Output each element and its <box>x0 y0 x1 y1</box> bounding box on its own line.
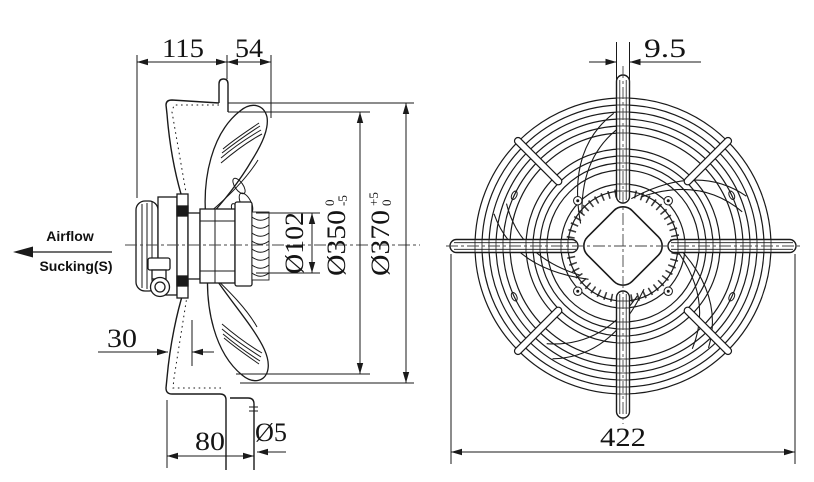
fan-tolerance-lower: -5 <box>335 195 350 206</box>
airflow-arrow-icon <box>13 247 33 258</box>
dim-54: 54 <box>235 34 263 63</box>
front-lip-tab <box>219 79 228 112</box>
fan-technical-drawing: Airflow Sucking(S) <box>0 0 814 482</box>
airflow-annotation: Airflow Sucking(S) <box>13 228 113 274</box>
hub-barrel <box>200 209 235 283</box>
fan-technical-drawing-page: Airflow Sucking(S) <box>0 0 814 482</box>
dim-hole-diameter: Ø5 <box>255 418 287 447</box>
dim-opening-diameter: Ø370 +5 0 <box>366 192 395 276</box>
rotor-rib-frame <box>252 212 269 280</box>
svg-text:Ø370: Ø370 <box>366 210 395 276</box>
sucking-label: Sucking(S) <box>39 258 112 274</box>
svg-text:Ø102: Ø102 <box>280 212 309 274</box>
motor-spacer <box>188 213 200 279</box>
dim-fan-diameter: Ø350 0 -5 <box>322 195 351 276</box>
dim-115: 115 <box>162 34 204 63</box>
svg-text:Ø350: Ø350 <box>322 210 351 276</box>
cable-gland-body <box>148 258 170 270</box>
dim-hub-diameter: Ø102 <box>280 212 309 274</box>
rotor-cup <box>235 202 252 286</box>
airflow-label: Airflow <box>46 228 94 244</box>
dim-strut-width: 9.5 <box>644 34 686 63</box>
motor <box>136 194 269 298</box>
flange-bolt-bottom <box>177 276 188 286</box>
opening-tolerance-lower: 0 <box>379 200 394 207</box>
bottom-flange <box>230 398 254 470</box>
flange-bolt-top <box>177 206 188 216</box>
dim-overall-width: 422 <box>600 423 646 452</box>
dim-80: 80 <box>195 427 225 456</box>
side-view: Airflow Sucking(S) <box>13 79 269 470</box>
dim-30: 30 <box>107 324 137 353</box>
